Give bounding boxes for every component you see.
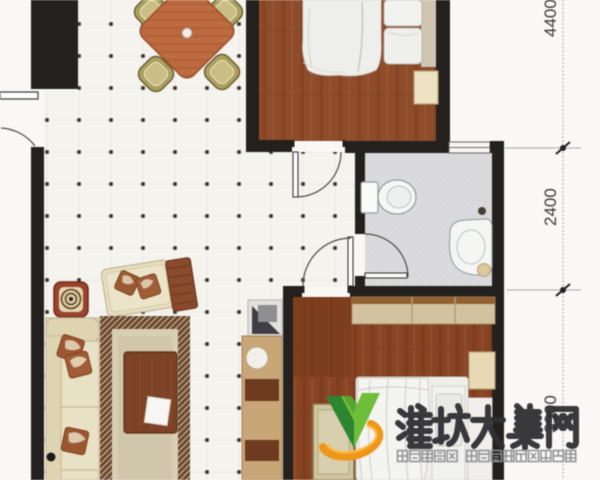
svg-text:4400: 4400 [541,0,560,37]
svg-text:2400: 2400 [541,188,560,226]
